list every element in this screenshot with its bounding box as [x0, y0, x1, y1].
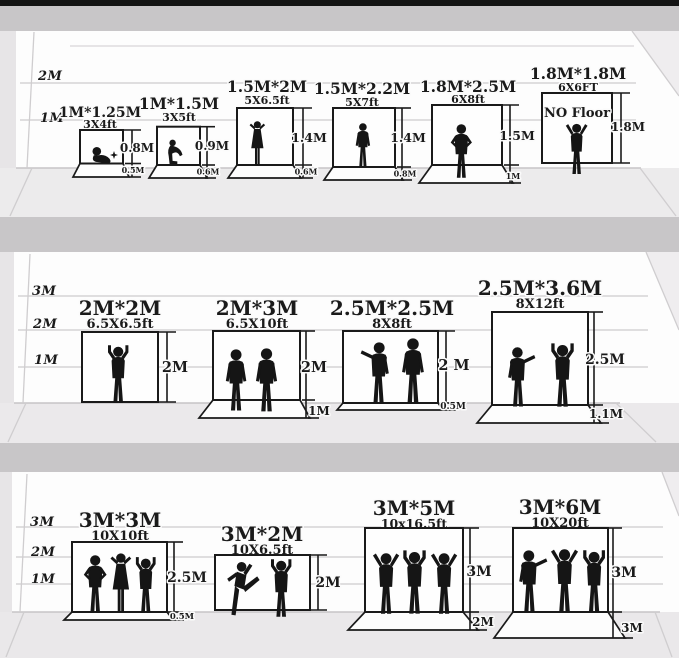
height-dimension-label: 2M [301, 359, 327, 376]
backdrop-floor-flap [477, 405, 601, 423]
backdrop-frame [157, 127, 200, 165]
panel-divider [0, 443, 679, 472]
axis-label: 2M [37, 69, 63, 84]
axis-label: 3M [32, 284, 57, 299]
backdrop-floor-flap [419, 165, 513, 183]
backdrop-subtitle: 5X6.5ft [244, 94, 290, 107]
axis-label: 2M [32, 317, 58, 332]
floor-dimension-label: 0.8M [394, 169, 417, 179]
panel-divider [0, 217, 679, 252]
backdrop-floor-flap [199, 400, 310, 418]
backdrop-subtitle: 6.5X10ft [226, 317, 288, 332]
backdrop-floor-flap [73, 164, 129, 178]
height-dimension-label: 1.5M [499, 128, 535, 143]
floor-dimension-label: 1M [308, 404, 330, 418]
floor-dimension-label: 0.5M [122, 165, 145, 175]
backdrop-floor-flap [64, 612, 173, 620]
floor-dimension-label: 2M [472, 615, 494, 629]
backdrop-floor-flap [324, 167, 403, 180]
backdrop-frame [432, 105, 502, 165]
height-dimension-label: 3M [466, 564, 491, 580]
floor-dimension-label: 0.5M [440, 402, 466, 412]
height-dimension-label: 2.5M [167, 570, 207, 586]
backdrop-size-chart: 2M 1M 1M*1.25M 3X4ft 0.8M 0.5M 1M*1.5M 3… [0, 0, 679, 658]
backdrop-frame [215, 555, 310, 610]
panel-divider [0, 6, 679, 31]
backdrop-frame [492, 312, 588, 405]
floor-dimension-label: 3M [621, 621, 643, 635]
height-dimension-label: 1.4M [291, 130, 327, 145]
height-dimension-label: 0.9M [195, 139, 229, 153]
person-silhouette [519, 549, 605, 611]
height-dimension-label: 2M [315, 575, 340, 591]
axis-label: 1M [31, 572, 56, 587]
axis-label: 2M [30, 545, 56, 560]
backdrop-subtitle: 8X12ft [516, 297, 565, 312]
height-dimension-label: 2 M [438, 357, 469, 374]
backdrop-frame [343, 331, 438, 403]
backdrop-subtitle: 3X5ft [162, 111, 197, 124]
floor-dimension-label: 0.5M [170, 612, 195, 622]
top-black-bar [0, 0, 679, 6]
axis-label: 3M [30, 515, 55, 530]
backdrop-subtitle: 6.5X6.5ft [87, 317, 154, 332]
height-dimension-label: 1.8M [611, 120, 645, 134]
height-dimension-label: 0.8M [120, 141, 154, 155]
person-silhouette [84, 553, 156, 613]
floor-dimension-label: 1M [506, 171, 521, 181]
height-dimension-label: 1.4M [390, 130, 426, 145]
backdrop-floor-flap [337, 403, 443, 410]
backdrop-floor-flap [228, 165, 301, 178]
backdrop-frame [213, 331, 300, 400]
backdrop-subtitle: 8X8ft [372, 317, 412, 332]
height-dimension-label: 3M [611, 565, 636, 581]
backdrop-floor-flap [494, 612, 625, 638]
no-floor-note: NO Floor [544, 106, 610, 121]
floor-dimension-label: 1.1M [589, 407, 623, 421]
floor-dimension-label: 0.6M [295, 167, 318, 177]
floor-dimension-label: 0.6M [197, 167, 220, 177]
size-chart-graphic: 2M 1M 1M*1.25M 3X4ft 0.8M 0.5M 1M*1.5M 3… [0, 0, 679, 658]
axis-label: 1M [34, 353, 59, 368]
backdrop-frame [237, 108, 293, 165]
height-dimension-label: 2M [162, 359, 188, 376]
height-dimension-label: 2.5M [585, 352, 625, 368]
backdrop-floor-flap [348, 612, 478, 630]
